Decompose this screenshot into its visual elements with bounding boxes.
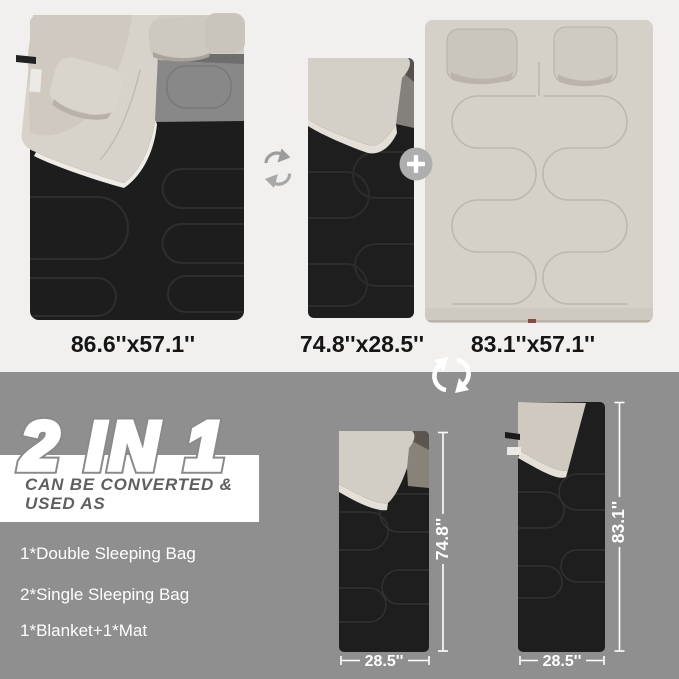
svg-text:74.8''x28.5'': 74.8''x28.5''	[300, 331, 424, 357]
svg-text:28.5'': 28.5''	[365, 653, 404, 670]
svg-text:83.1''x57.1'': 83.1''x57.1''	[471, 331, 595, 357]
svg-text:USED AS: USED AS	[25, 494, 106, 513]
svg-text:CAN BE CONVERTED &: CAN BE CONVERTED &	[25, 475, 233, 494]
svg-text:74.8'': 74.8''	[432, 518, 452, 560]
svg-text:86.6''x57.1'': 86.6''x57.1''	[71, 331, 195, 357]
svg-text:83.1'': 83.1''	[608, 501, 628, 543]
svg-text:1*Double Sleeping Bag: 1*Double Sleeping Bag	[20, 544, 196, 563]
svg-text:28.5'': 28.5''	[543, 653, 582, 670]
svg-text:2*Single Sleeping Bag: 2*Single Sleeping Bag	[20, 585, 189, 604]
svg-text:1*Blanket+1*Mat: 1*Blanket+1*Mat	[20, 621, 147, 640]
svg-text:2 IN 1: 2 IN 1	[19, 408, 228, 484]
